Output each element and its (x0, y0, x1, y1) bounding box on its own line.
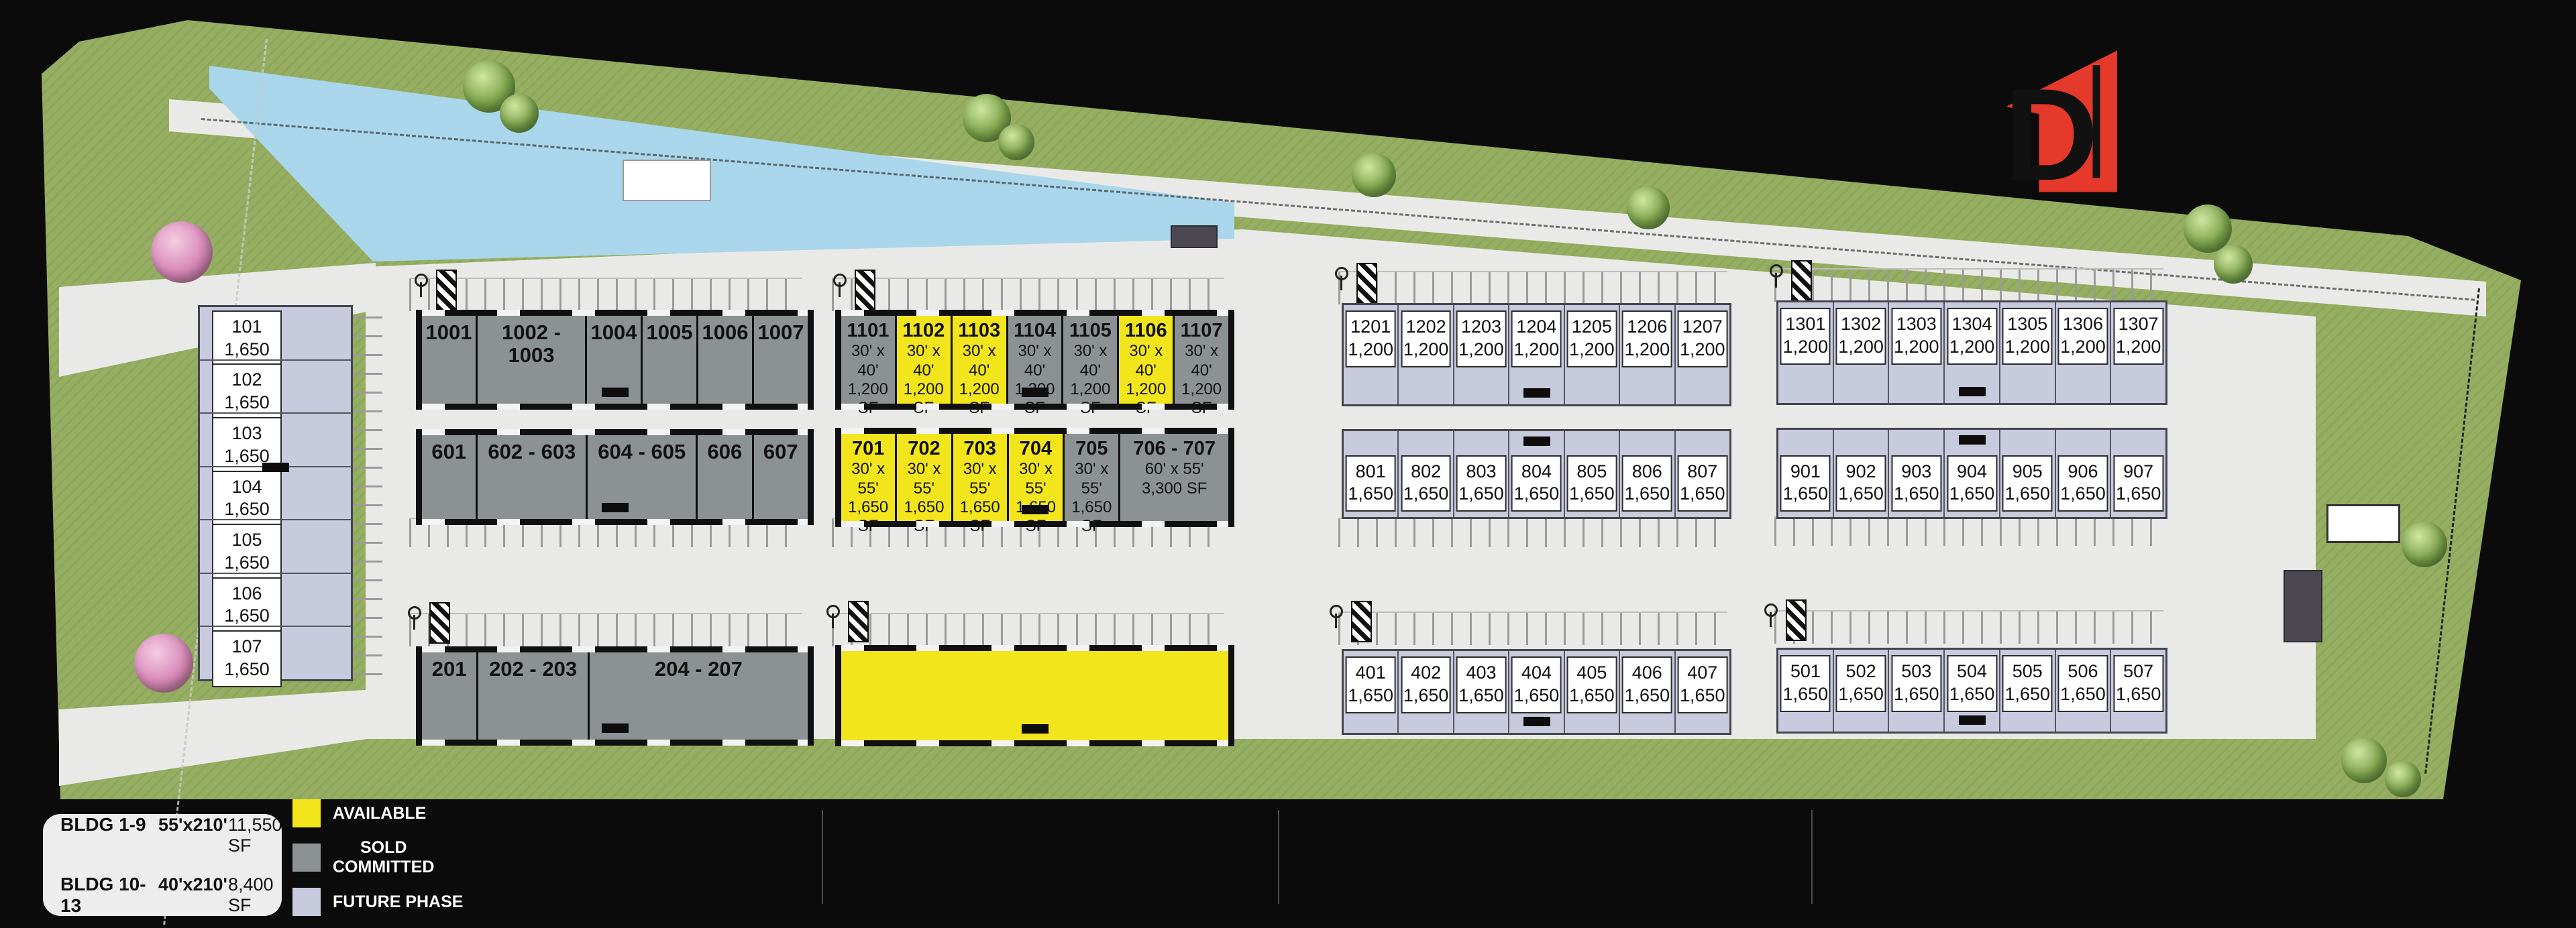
unit-area: 1,650 SF (1009, 498, 1063, 536)
unit-number: 1103 (953, 319, 1006, 342)
unit-area: 1,650 (1678, 483, 1726, 506)
unit-number: 1202 (1402, 316, 1450, 339)
unit-cell: 1306 1,200 (2055, 302, 2110, 403)
unit-number: 1105 (1063, 319, 1117, 342)
unit-area: 1,200 (1678, 339, 1726, 361)
unit-dimensions: 30' x 40' (1008, 342, 1062, 380)
unit-cell: 1305 1,200 (1999, 302, 2055, 403)
unit-tag: 406 1,650 (1622, 656, 1672, 713)
unit-cell: 1303 1,200 (1888, 302, 1943, 403)
unit-number: 401 (1347, 662, 1395, 685)
building-label (1523, 717, 1550, 726)
unit-cell: 1206 1,200 (1619, 305, 1674, 404)
unit-tag: 1301 1,200 (1780, 308, 1831, 365)
unit-area: 1,650 (2004, 683, 2051, 706)
building-label (1022, 388, 1049, 397)
building-label (1022, 724, 1049, 734)
phase-bar (0, 801, 2576, 928)
tree-icon (2184, 205, 2232, 253)
unit-number: 901 (1782, 461, 1829, 483)
unit-tag: 1304 1,200 (1947, 308, 1997, 365)
unit-tag: 505 1,650 (2002, 655, 2053, 712)
unit-cell: 1107 30' x 40' 1,200 SF (1173, 316, 1228, 404)
unit-area: 1,650 (213, 552, 280, 575)
unit-cell: 505 1,650 (1999, 650, 2055, 732)
unit-tag: 904 1,650 (1947, 455, 1997, 512)
unit-cell: 1205 1,200 (1564, 305, 1619, 404)
unit-tag: 1204 1,200 (1511, 310, 1562, 367)
parking-strip (832, 278, 1224, 311)
unit-number: 406 (1623, 662, 1671, 685)
unit-cell: 706 - 707 60' x 55' 3,300 SF (1118, 434, 1228, 521)
building-label (1523, 388, 1550, 398)
unit-cell: 104 1,650 (200, 466, 351, 520)
unit-number: 1203 (1458, 316, 1505, 339)
unit-area: 1,200 (1513, 339, 1560, 361)
unit-cell: 1203 1,200 (1453, 305, 1508, 404)
unit-area: 1,650 (1513, 483, 1560, 506)
unit-area: 1,650 (2004, 483, 2051, 506)
tree-icon (1627, 186, 1670, 229)
unit-area: 1,200 (2114, 336, 2162, 359)
unit-cell: 901 1,650 (1778, 430, 1833, 517)
unit-number: 404 (1513, 662, 1560, 685)
unit-number: 1204 (1513, 316, 1560, 339)
unit-area: 1,200 SF (953, 380, 1006, 418)
unit-cell: 805 1,650 (1564, 431, 1619, 517)
d-mark-icon: D (2002, 35, 2137, 199)
unit-tag: 407 1,650 (1677, 656, 1727, 713)
unit-tag: 801 1,650 (1346, 455, 1396, 512)
svg-text:D: D (2004, 62, 2098, 199)
unit-dimensions: 30' x 55' (1009, 460, 1063, 498)
building-8: 801 1,650 802 1,650 803 1,650 804 1,650 (1342, 429, 1731, 519)
unit-area: 1,200 (1458, 339, 1505, 361)
unit-tag: 804 1,650 (1511, 455, 1562, 512)
unit-area: 1,200 (2059, 336, 2106, 359)
unit-area: 1,650 (1513, 685, 1560, 707)
unit-area: 1,650 (213, 605, 280, 628)
unit-area: 1,650 (1568, 483, 1616, 506)
building-3 (835, 645, 1234, 746)
unit-number: 405 (1568, 662, 1616, 685)
unit-number: 903 (1892, 461, 1940, 483)
unit-number: 502 (1837, 660, 1885, 683)
unit-tag: 1302 1,200 (1836, 308, 1886, 365)
unit-area: 1,650 (213, 392, 280, 414)
tree-icon (998, 124, 1034, 160)
unit-dimensions: 30' x 55' (953, 460, 1007, 498)
unit-cell: 702 30' x 55' 1,650 SF (895, 434, 951, 521)
unit-cell: 506 1,650 (2055, 650, 2110, 732)
unit-area: 3,300 SF (1133, 479, 1216, 498)
tree-icon (2385, 761, 2421, 797)
unit-info: 703 30' x 55' 1,650 SF (953, 437, 1007, 521)
unit-number: 507 (2114, 660, 2162, 683)
unit-tag: 107 1,650 (212, 630, 282, 687)
unit-dimensions: 30' x 40' (1063, 342, 1117, 380)
parking-strip (1338, 612, 1727, 645)
unit-number: 907 (2114, 461, 2162, 483)
site-plan: 101 1,650 102 1,650 103 1,650 104 1,650 (0, 0, 2576, 928)
unit-area: 1,650 (1458, 483, 1505, 506)
unit-cell: 401 1,650 (1344, 651, 1397, 733)
unit-info: 1103 30' x 40' 1,200 SF (953, 319, 1006, 404)
tree-icon (500, 94, 539, 133)
unit-dimensions: 30' x 55' (897, 460, 951, 498)
unit-number: 806 (1623, 461, 1671, 483)
unit-area: 1,650 (1458, 685, 1505, 707)
unit-tag: 1205 1,200 (1567, 310, 1617, 367)
unit-cell: 507 1,650 (2110, 650, 2165, 732)
unit-info: 1107 30' x 40' 1,200 SF (1175, 319, 1228, 404)
building-label (1523, 437, 1550, 446)
unit-cell: 503 1,650 (1888, 650, 1943, 732)
flag-marker-icon (1335, 267, 1348, 280)
unit-number: 402 (1402, 662, 1450, 685)
unit-number: 704 (1009, 437, 1063, 460)
unit-number: 101 (213, 316, 280, 339)
unit-tag: 503 1,650 (1891, 655, 1941, 712)
unit-tag: 907 1,650 (2113, 455, 2163, 512)
unit-cell: 105 1,650 (200, 519, 351, 573)
parking-strip (1774, 268, 2163, 302)
unit-area: 1,650 (1347, 483, 1395, 506)
unit-tag: 405 1,650 (1567, 656, 1617, 713)
unit-area: 1,650 (1948, 483, 1996, 506)
unit-tag: 806 1,650 (1622, 455, 1672, 512)
unit-cell: 407 1,650 (1674, 651, 1729, 733)
unit-number: 503 (1892, 660, 1940, 683)
unit-cell: 705 30' x 55' 1,650 SF (1063, 434, 1118, 521)
unit-tag: 902 1,650 (1836, 455, 1886, 512)
unit-tag: 1303 1,200 (1891, 308, 1941, 365)
unit-info: 1106 30' x 40' 1,200 SF (1119, 319, 1173, 404)
unit-number: 1207 (1678, 316, 1726, 339)
unit-area: 1,200 (1623, 339, 1671, 361)
building-9: 901 1,650 902 1,650 903 1,650 904 1,650 (1776, 428, 2167, 519)
unit-number: 505 (2004, 660, 2051, 683)
flowering-tree-icon (151, 221, 213, 283)
unit-area: 1,650 (213, 498, 280, 521)
unit-area: 1,200 (1948, 336, 1996, 359)
unit-dimensions: 60' x 55' (1133, 460, 1216, 479)
unit-dimensions: 30' x 55' (1065, 460, 1118, 498)
unit-number: 801 (1347, 461, 1395, 483)
unit-tag: 501 1,650 (1780, 655, 1831, 712)
unit-area: 1,650 SF (1065, 498, 1118, 536)
unit-number: 906 (2059, 461, 2106, 483)
unit-cell: 802 1,650 (1397, 431, 1452, 517)
unit-cell: 101 1,650 (200, 307, 351, 359)
unit-cell: 1106 30' x 40' 1,200 SF (1117, 316, 1173, 404)
unit-tag: 803 1,650 (1456, 455, 1507, 512)
flag-marker-icon (1764, 603, 1778, 617)
unit-number: 1305 (2004, 313, 2051, 336)
unit-number: 1106 (1119, 319, 1173, 342)
unit-area: 1,200 (2004, 336, 2051, 359)
unit-number: 807 (1678, 461, 1726, 483)
unit-cell: 403 1,650 (1453, 651, 1508, 733)
dumpster-pad (1171, 225, 1218, 248)
tree-icon (1352, 153, 1396, 197)
unit-cell: 902 1,650 (1833, 430, 1888, 517)
phase-divider (1811, 810, 1813, 904)
hatch-marker (855, 270, 875, 311)
unit-cell: 903 1,650 (1888, 430, 1943, 517)
unit-area: 1,650 (1892, 483, 1940, 506)
unit-number: 1102 (897, 319, 951, 342)
unit-tag: 402 1,650 (1401, 656, 1451, 713)
unit-area: 1,200 (1837, 336, 1885, 359)
tree-icon (2402, 522, 2447, 567)
building-label (1959, 715, 1986, 725)
unit-cell: 1307 1,200 (2110, 302, 2165, 403)
flowering-tree-icon (134, 634, 193, 693)
flag-marker-icon (1330, 605, 1343, 618)
unit-number: 1306 (2059, 313, 2106, 336)
unit-area: 1,200 (1892, 336, 1940, 359)
unit-area: 1,650 (1782, 483, 1829, 506)
phase-divider (1278, 810, 1279, 904)
tree-icon (2214, 245, 2253, 284)
unit-area: 1,650 (1782, 683, 1829, 706)
unit-area: 1,650 (1837, 483, 1885, 506)
unit-cell: 103 1,650 (200, 412, 351, 466)
unit-number: 905 (2004, 461, 2051, 483)
unit-area: 1,650 (1623, 483, 1671, 506)
parking-strip (832, 613, 1224, 646)
unit-area: 1,650 SF (953, 498, 1007, 536)
building-label (1959, 387, 1986, 396)
unit-info: 706 - 707 60' x 55' 3,300 SF (1133, 437, 1216, 521)
unit-cell: 405 1,650 (1564, 651, 1619, 733)
unit-area: 1,650 (1402, 685, 1450, 707)
unit-dimensions: 30' x 40' (1175, 342, 1228, 380)
unit-area: 1,650 SF (897, 498, 951, 536)
unit-number: 804 (1513, 461, 1560, 483)
unit-number: 106 (213, 583, 280, 605)
unit-number: 1107 (1175, 319, 1228, 342)
unit-number: 705 (1065, 437, 1118, 460)
unit-cell: 102 1,650 (200, 359, 351, 413)
unit-info: 1105 30' x 40' 1,200 SF (1063, 319, 1117, 404)
flag-marker-icon (833, 274, 847, 287)
unit-area: 1,650 (1347, 685, 1395, 707)
unit-info: 705 30' x 55' 1,650 SF (1065, 437, 1118, 521)
unit-tag: 403 1,650 (1456, 656, 1507, 713)
building-12: 1201 1,200 1202 1,200 1203 1,200 1204 1,… (1342, 303, 1731, 406)
unit-number: 902 (1837, 461, 1885, 483)
unit-number: 1206 (1623, 316, 1671, 339)
unit-tag: 903 1,650 (1891, 455, 1941, 512)
hatch-marker (848, 601, 869, 642)
unit-tag: 901 1,650 (1780, 455, 1831, 512)
dumpster-pad (2284, 570, 2322, 642)
unit-tag: 1203 1,200 (1456, 310, 1507, 367)
unit-cell: 1201 1,200 (1344, 305, 1397, 404)
unit-cell: 905 1,650 (1999, 430, 2055, 517)
unit-cell: 1207 1,200 (1674, 305, 1729, 404)
unit-number: 702 (897, 437, 951, 460)
unit-info: 1102 30' x 40' 1,200 SF (897, 319, 951, 404)
unit-area: 1,650 (1678, 685, 1726, 707)
unit-cell: 1105 30' x 40' 1,200 SF (1061, 316, 1117, 404)
hatch-marker (1791, 260, 1812, 302)
unit-cell: 402 1,650 (1397, 651, 1452, 733)
parking-strip (1338, 518, 1727, 547)
unit-area: 1,200 SF (1063, 380, 1117, 418)
unit-area: 1,650 (2114, 683, 2162, 706)
hatch-marker (1786, 599, 1807, 641)
unit-dimensions: 30' x 55' (841, 460, 895, 498)
unit-tag: 506 1,650 (2057, 655, 2108, 712)
unit-area: 1,200 SF (897, 380, 951, 418)
unit-dimensions: 30' x 40' (1119, 342, 1173, 380)
building-label (1022, 505, 1049, 514)
unit-tag: 1207 1,200 (1677, 310, 1727, 367)
unit-number: 1301 (1782, 313, 1829, 336)
unit-tag: 401 1,650 (1346, 656, 1396, 713)
unit-tag: 502 1,650 (1836, 655, 1886, 712)
unit-area: 1,650 (2059, 683, 2106, 706)
unit-number: 1307 (2114, 313, 2162, 336)
unit-cell: 703 30' x 55' 1,650 SF (951, 434, 1007, 521)
unit-tag: 807 1,650 (1677, 455, 1727, 512)
unit-number: 1205 (1568, 316, 1616, 339)
unit-area: 1,200 SF (1175, 380, 1228, 418)
flag-marker-icon (1770, 264, 1783, 278)
building-5: 501 1,650 502 1,650 503 1,650 504 1,650 (1776, 648, 2167, 734)
parking-strip (1338, 271, 1727, 304)
unit-number: 104 (213, 476, 280, 499)
unit-cell: 1302 1,200 (1833, 302, 1888, 403)
unit-number: 803 (1458, 461, 1505, 483)
building-13: 1301 1,200 1302 1,200 1303 1,200 1304 1,… (1776, 300, 2167, 405)
unit-tag: 1202 1,200 (1401, 310, 1451, 367)
unit-area: 1,200 (1402, 339, 1450, 361)
unit-number: 107 (213, 636, 280, 658)
unit-tag: 905 1,650 (2002, 455, 2053, 512)
flag-marker-icon (826, 605, 840, 618)
hatch-marker (1356, 263, 1377, 304)
unit-area: 1,650 (1837, 683, 1885, 706)
unit-number: 1302 (1837, 313, 1885, 336)
hatch-marker (436, 270, 457, 311)
unit-area: 1,650 SF (841, 498, 895, 536)
unit-area: 1,650 (1568, 685, 1616, 707)
unit-cell: 906 1,650 (2055, 430, 2110, 517)
unit-number: 105 (213, 529, 280, 552)
unit-area: 1,650 (1948, 683, 1996, 706)
unit-number: 1104 (1008, 319, 1062, 342)
unit-tag: 404 1,650 (1511, 656, 1562, 713)
unit-area: 1,200 SF (1008, 380, 1062, 418)
building-label (1959, 435, 1986, 445)
unit-number: 802 (1402, 461, 1450, 483)
unit-number: 102 (213, 369, 280, 392)
unit-cell: 801 1,650 (1344, 431, 1397, 517)
unit-tag: 1307 1,200 (2113, 308, 2163, 365)
unit-number: 1304 (1948, 313, 1996, 336)
unit-number: 103 (213, 422, 280, 445)
unit-tag: 906 1,650 (2057, 455, 2108, 512)
unit-tag: 802 1,650 (1401, 455, 1451, 512)
unit-area: 1,650 (2114, 483, 2162, 506)
unit-number: 805 (1568, 461, 1616, 483)
unit-number: 706 - 707 (1133, 437, 1216, 460)
building-4: 401 1,650 402 1,650 403 1,650 404 1,650 (1342, 649, 1731, 735)
tree-icon (2341, 738, 2387, 783)
unit-cell: 803 1,650 (1453, 431, 1508, 517)
unit-cell: 502 1,650 (1833, 650, 1888, 732)
unit-number: 501 (1782, 660, 1829, 683)
unit-area: 1,650 (213, 339, 280, 361)
hatch-marker (1351, 601, 1372, 642)
unit-cell: 1301 1,200 (1778, 302, 1833, 403)
unit-tag: 504 1,650 (1947, 655, 1997, 712)
unit-area: 1,650 (1623, 685, 1671, 707)
unit-number: 904 (1948, 461, 1996, 483)
building-7: 701 30' x 55' 1,650 SF 702 30' x 55' 1,6… (835, 428, 1234, 527)
unit-cell: 806 1,650 (1619, 431, 1674, 517)
unit-tag: 1305 1,200 (2002, 308, 2053, 365)
street-label (8, 305, 39, 500)
parking-strip (1774, 610, 2163, 644)
unit-area: 1,200 (1347, 339, 1395, 361)
ossf-label (2326, 504, 2400, 543)
unit-area: 1,200 (1782, 336, 1829, 359)
flag-marker-icon (415, 274, 428, 287)
unit-tag: 507 1,650 (2113, 655, 2163, 712)
unit-area: 1,650 (2059, 483, 2106, 506)
phase-divider (822, 810, 823, 904)
unit-dimensions: 30' x 40' (953, 342, 1006, 380)
unit-number: 703 (953, 437, 1007, 460)
unit-number: 504 (1948, 660, 1996, 683)
unit-cell: 1102 30' x 40' 1,200 SF (895, 316, 951, 404)
unit-area: 1,650 (1402, 483, 1450, 506)
unit-cell: 807 1,650 (1674, 431, 1729, 517)
parking-strip (1774, 516, 2163, 546)
unit-number: 1201 (1347, 316, 1395, 339)
brand-logo: D (2002, 35, 2539, 209)
unit-cell: 1103 30' x 40' 1,200 SF (951, 316, 1006, 404)
unit-area: 1,200 SF (1119, 380, 1173, 418)
unit-cell: 501 1,650 (1778, 650, 1833, 732)
unit-cell: 1202 1,200 (1397, 305, 1452, 404)
unit-area: 1,650 (1892, 683, 1940, 706)
unit-cell: 406 1,650 (1619, 651, 1674, 733)
unit-number: 403 (1458, 662, 1505, 685)
unit-area: 1,200 (1568, 339, 1616, 361)
unit-number: 407 (1678, 662, 1726, 685)
unit-tag: 805 1,650 (1567, 455, 1617, 512)
unit-number: 506 (2059, 660, 2106, 683)
building-label (262, 463, 289, 472)
unit-tag: 1306 1,200 (2057, 308, 2108, 365)
unit-tag: 1201 1,200 (1346, 310, 1396, 367)
unit-tag: 1206 1,200 (1622, 310, 1672, 367)
unit-number: 1303 (1892, 313, 1940, 336)
unit-cell: 907 1,650 (2110, 430, 2165, 517)
unit-info: 702 30' x 55' 1,650 SF (897, 437, 951, 521)
